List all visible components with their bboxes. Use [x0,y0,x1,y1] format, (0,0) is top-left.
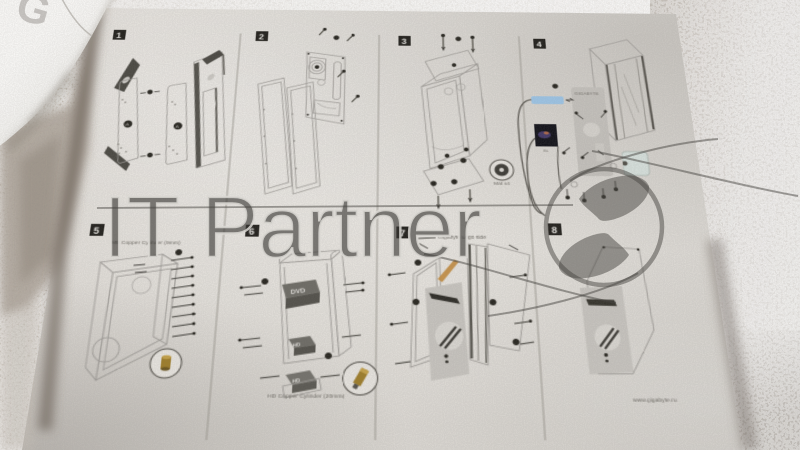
svg-text:IT Partner: IT Partner [103,179,482,276]
